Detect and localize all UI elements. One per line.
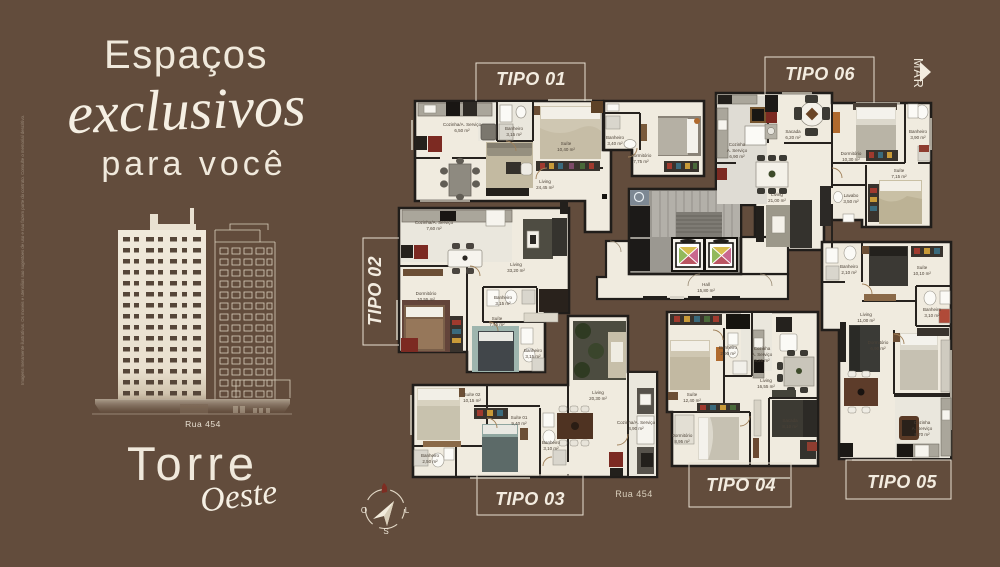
svg-text:Suíte: Suíte [561, 141, 572, 146]
svg-text:10,10 m²: 10,10 m² [913, 271, 931, 276]
svg-text:Dormitório: Dormitório [672, 433, 693, 438]
svg-text:Living: Living [860, 312, 872, 317]
svg-text:Suíte: Suíte [917, 265, 928, 270]
svg-text:3,15 m²: 3,15 m² [506, 132, 522, 137]
svg-text:5,25 m²: 5,25 m² [754, 358, 770, 363]
svg-text:24,45 m²: 24,45 m² [536, 185, 554, 190]
svg-text:7,75 m²: 7,75 m² [633, 159, 649, 164]
svg-text:Banheiro: Banheiro [606, 135, 625, 140]
svg-text:2,50 m²: 2,50 m² [422, 459, 438, 464]
svg-text:9,40 m²: 9,40 m² [511, 421, 527, 426]
svg-text:Suíte: Suíte [687, 392, 698, 397]
svg-text:Lavabo: Lavabo [844, 193, 859, 198]
svg-text:Dormitório: Dormitório [868, 340, 889, 345]
svg-text:Suíte 02: Suíte 02 [464, 392, 481, 397]
svg-text:Sacada: Sacada [782, 418, 798, 423]
svg-text:Dormitório: Dormitório [416, 291, 437, 296]
svg-text:33,20 m²: 33,20 m² [507, 268, 525, 273]
svg-text:Cozinha/A. Serviço: Cozinha/A. Serviço [415, 220, 454, 225]
svg-text:O: O [361, 506, 367, 515]
svg-text:8,10 m²: 8,10 m² [782, 424, 798, 429]
svg-text:7,15 m²: 7,15 m² [891, 174, 907, 179]
svg-text:3,90 m²: 3,90 m² [910, 135, 926, 140]
svg-text:Banheiro: Banheiro [494, 295, 513, 300]
svg-text:11,00 m²: 11,00 m² [857, 318, 875, 323]
svg-text:6,20 m²: 6,20 m² [785, 135, 801, 140]
svg-text:A. Serviço: A. Serviço [727, 148, 748, 153]
svg-text:6,90 m²: 6,90 m² [729, 154, 745, 159]
svg-text:Living: Living [760, 378, 772, 383]
svg-text:exclusivos: exclusivos [66, 73, 306, 146]
svg-text:3,15 m²: 3,15 m² [495, 301, 511, 306]
svg-text:TIPO 02: TIPO 02 [365, 256, 385, 326]
svg-text:20,30 m²: 20,30 m² [589, 396, 607, 401]
svg-text:Banheiro: Banheiro [909, 129, 928, 134]
svg-text:Banheiro: Banheiro [923, 307, 942, 312]
svg-text:Espaços: Espaços [104, 33, 268, 77]
svg-text:3,40 m²: 3,40 m² [607, 141, 623, 146]
svg-text:10,15 m²: 10,15 m² [463, 398, 481, 403]
svg-text:Suíte: Suíte [894, 168, 905, 173]
svg-text:Hall: Hall [702, 282, 710, 287]
svg-text:7,60 m²: 7,60 m² [426, 226, 442, 231]
svg-text:A. Serviço: A. Serviço [752, 352, 773, 357]
svg-text:para você: para você [101, 145, 286, 183]
svg-text:TIPO 05: TIPO 05 [867, 472, 937, 492]
svg-text:3,50 m²: 3,50 m² [843, 199, 859, 204]
svg-text:Cozinha/A. Serviço: Cozinha/A. Serviço [443, 122, 482, 127]
svg-text:3,15 m²: 3,15 m² [525, 354, 541, 359]
svg-text:10,55 m²: 10,55 m² [417, 297, 435, 302]
svg-text:10,30 m²: 10,30 m² [842, 157, 860, 162]
svg-text:3,10 m²: 3,10 m² [543, 446, 559, 451]
svg-text:Banheiro: Banheiro [505, 126, 524, 131]
svg-text:8,95 m²: 8,95 m² [674, 439, 690, 444]
svg-text:Banheiro: Banheiro [421, 453, 440, 458]
svg-text:15,80 m²: 15,80 m² [697, 288, 715, 293]
svg-text:8,70 m²: 8,70 m² [914, 432, 930, 437]
svg-text:TIPO 04: TIPO 04 [706, 475, 776, 495]
svg-text:Banheiro: Banheiro [542, 440, 561, 445]
svg-text:6,90 m²: 6,90 m² [870, 346, 886, 351]
svg-text:Banheiro: Banheiro [524, 348, 543, 353]
svg-text:Dormitório: Dormitório [631, 153, 652, 158]
svg-text:Suíte 01: Suíte 01 [511, 415, 528, 420]
svg-text:2,90 m²: 2,90 m² [720, 351, 736, 356]
svg-text:12,40 m²: 12,40 m² [683, 398, 701, 403]
svg-text:Banheiro: Banheiro [719, 345, 738, 350]
svg-text:TIPO 06: TIPO 06 [785, 64, 855, 84]
svg-text:Suíte: Suíte [492, 316, 503, 321]
svg-text:TIPO 01: TIPO 01 [496, 69, 566, 89]
svg-text:Cozinha: Cozinha [729, 142, 746, 147]
svg-text:Living: Living [592, 390, 604, 395]
svg-text:Living: Living [539, 179, 551, 184]
svg-text:Rua 454: Rua 454 [615, 489, 653, 499]
svg-text:6,50 m²: 6,50 m² [454, 128, 470, 133]
svg-text:Imagens meramente ilustrativas: Imagens meramente ilustrativas. Os movei… [20, 115, 25, 385]
svg-text:A. Serviço: A. Serviço [912, 426, 933, 431]
svg-text:Banheiro: Banheiro [840, 264, 859, 269]
svg-text:10,40 m²: 10,40 m² [557, 147, 575, 152]
svg-text:16,55 m²: 16,55 m² [757, 384, 775, 389]
svg-text:3,10 m²: 3,10 m² [924, 313, 940, 318]
svg-text:Cozinha/A. Serviço: Cozinha/A. Serviço [617, 420, 656, 425]
svg-text:Living: Living [771, 192, 783, 197]
svg-text:Dormitório: Dormitório [841, 151, 862, 156]
svg-text:4,90 m²: 4,90 m² [628, 426, 644, 431]
svg-text:21,00 m²: 21,00 m² [768, 198, 786, 203]
svg-text:S: S [383, 527, 388, 536]
svg-text:Cozinha: Cozinha [914, 420, 931, 425]
svg-text:Sacada: Sacada [785, 129, 801, 134]
svg-text:Cozinha: Cozinha [754, 346, 771, 351]
svg-text:7,45 m²: 7,45 m² [489, 322, 505, 327]
svg-text:L: L [405, 506, 410, 515]
svg-text:Living: Living [510, 262, 522, 267]
svg-text:Rua 454: Rua 454 [185, 419, 221, 429]
svg-text:TIPO 03: TIPO 03 [495, 489, 565, 509]
svg-text:2,10 m²: 2,10 m² [841, 270, 857, 275]
